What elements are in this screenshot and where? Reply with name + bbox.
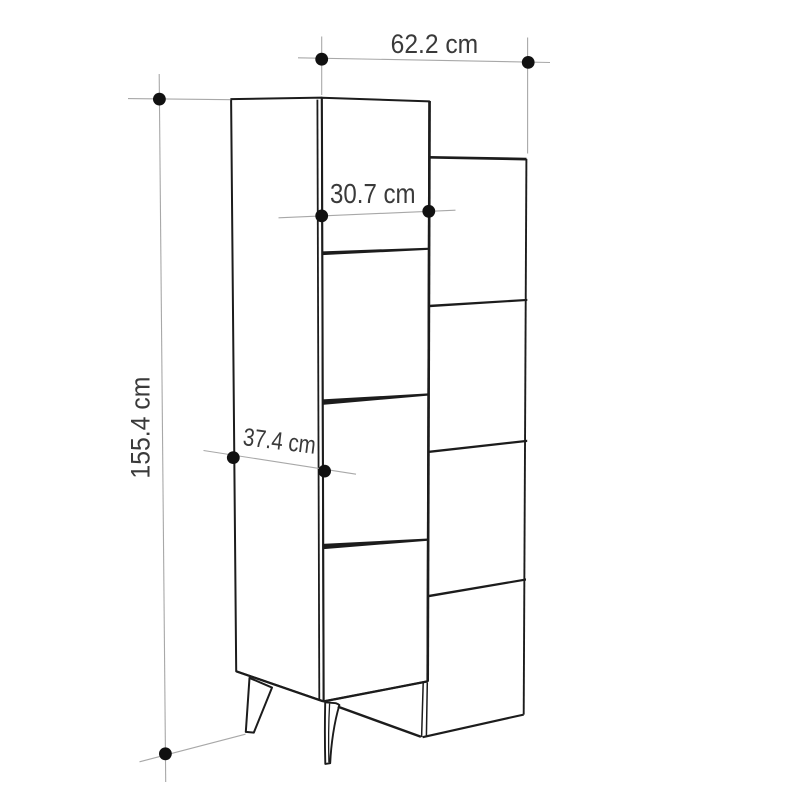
svg-text:30.7 cm: 30.7 cm <box>330 178 416 209</box>
svg-text:155.4 cm: 155.4 cm <box>126 377 156 479</box>
svg-text:62.2 cm: 62.2 cm <box>391 29 479 59</box>
